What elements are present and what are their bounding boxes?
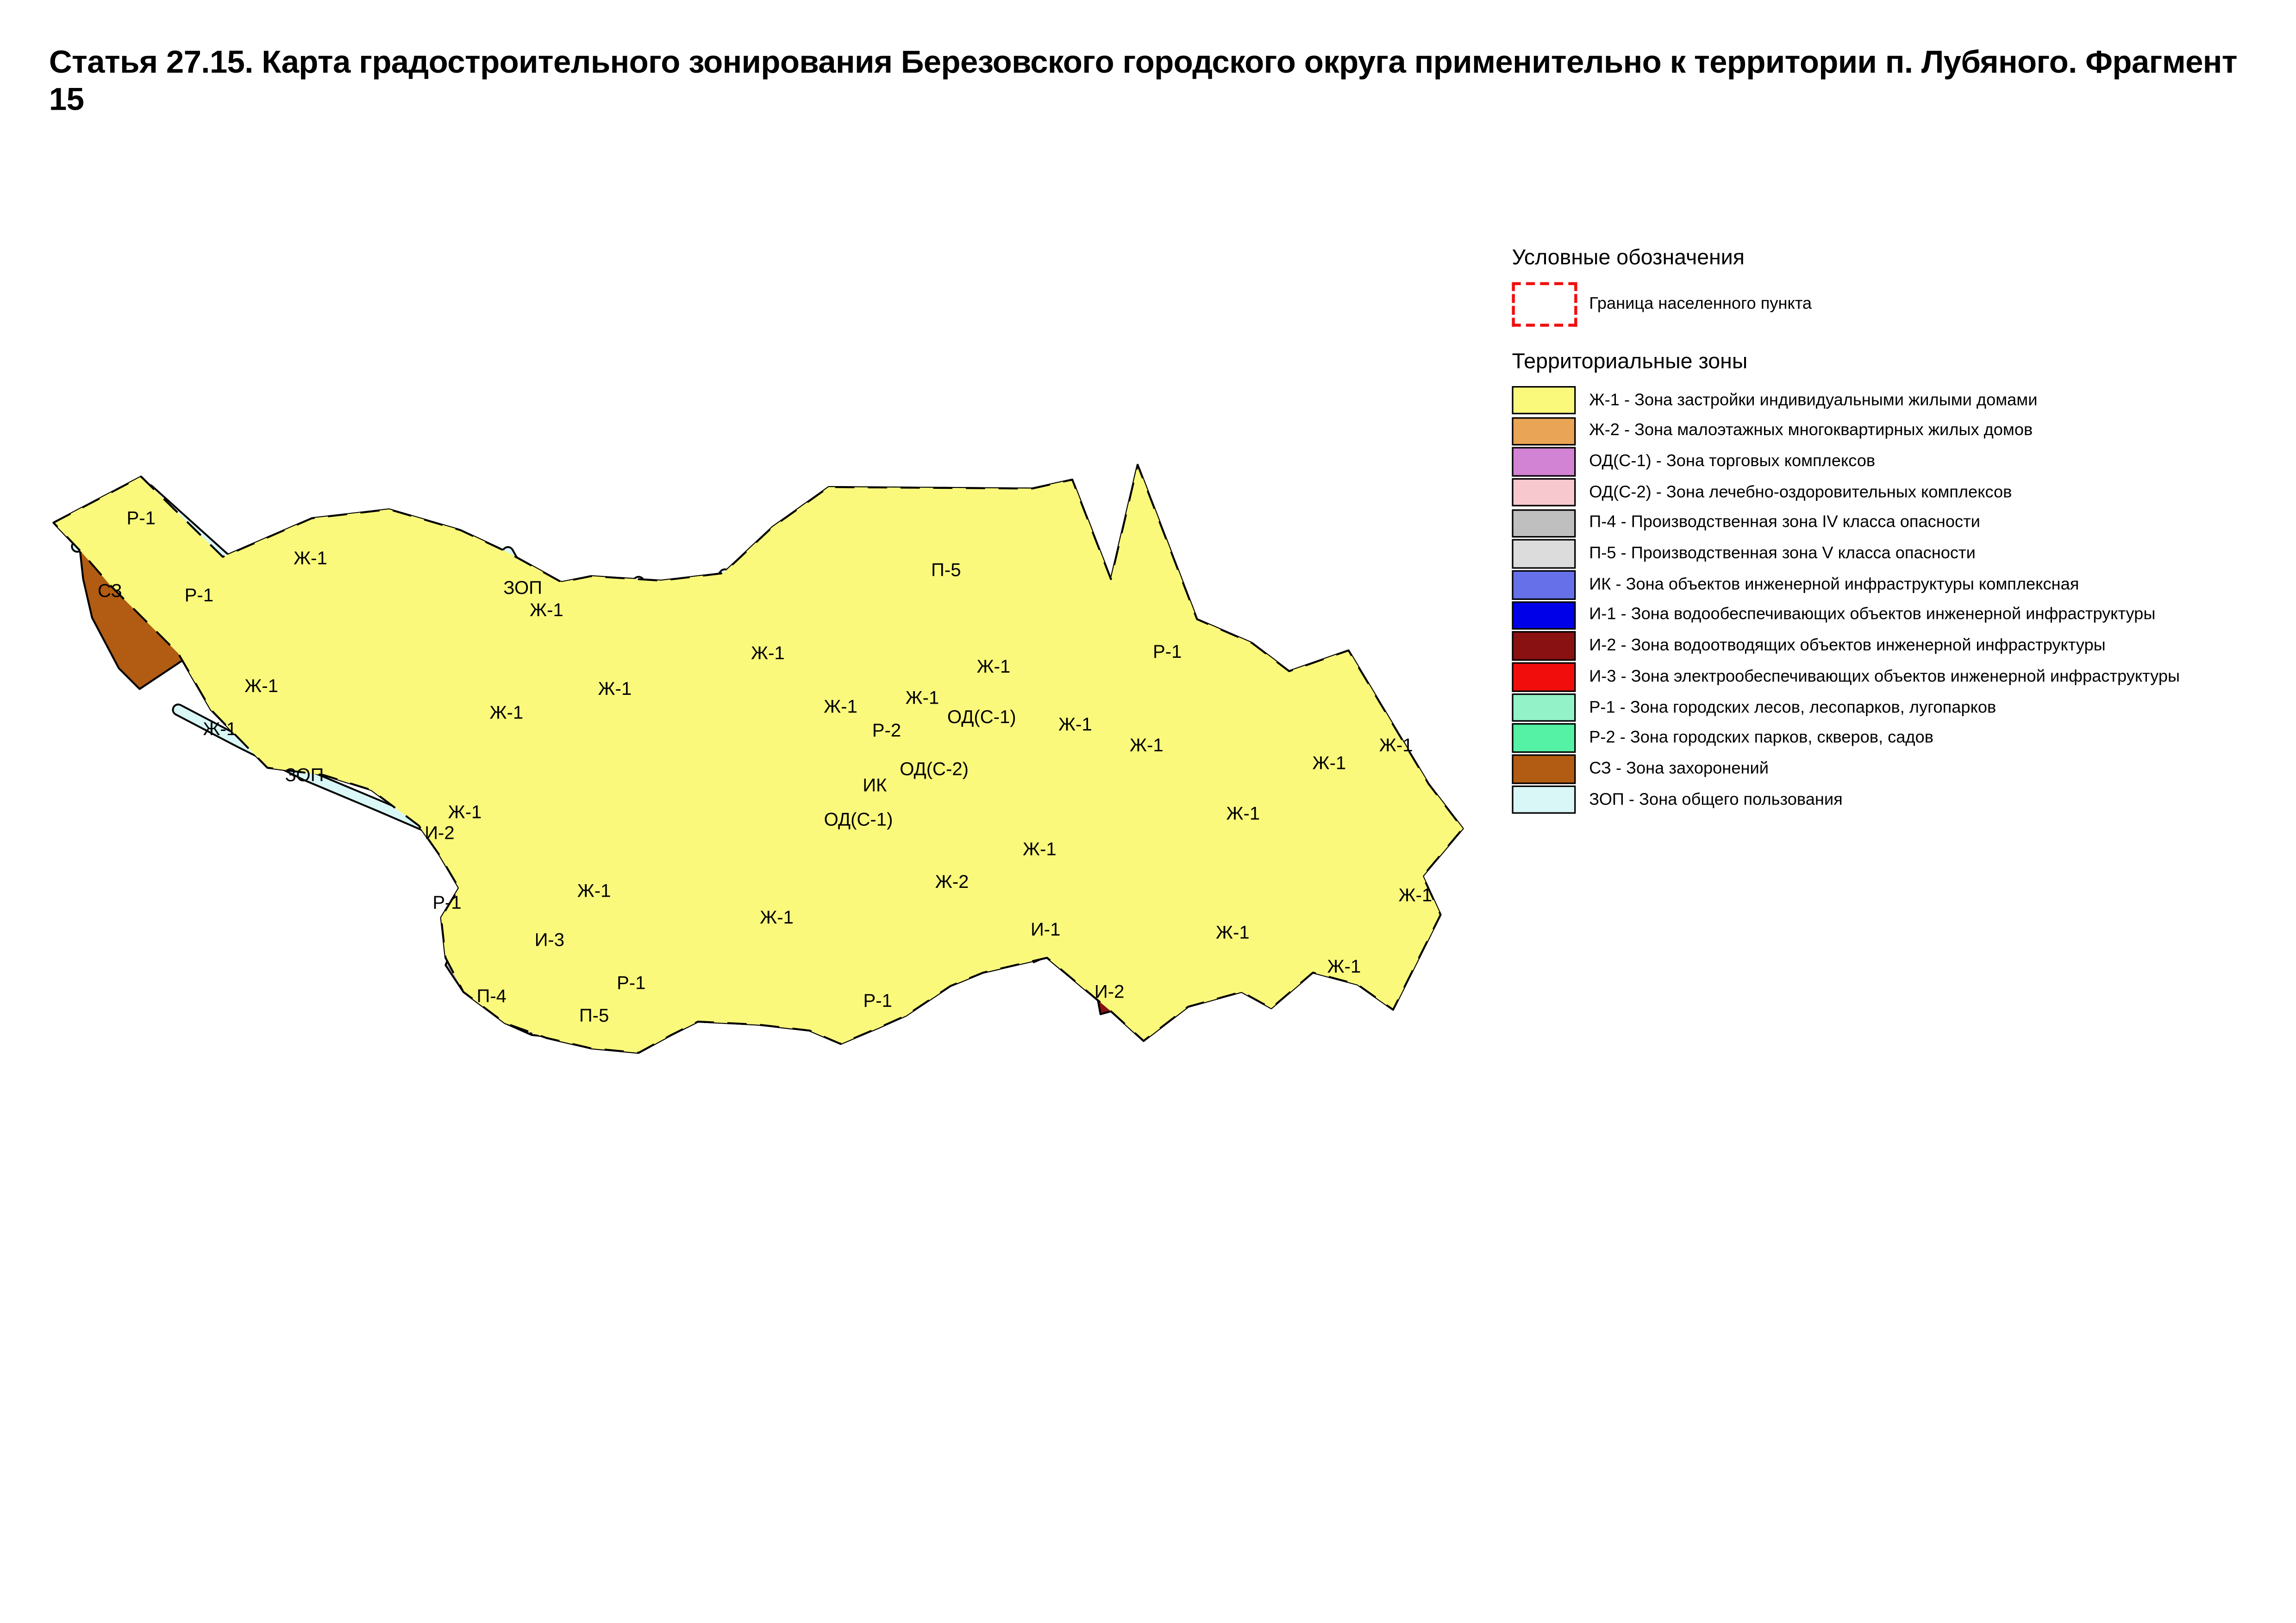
map-zone-label: Ж-1 — [1327, 956, 1361, 977]
legend-zone-swatch — [1512, 478, 1576, 507]
map-zone-label: ЗОП — [285, 765, 324, 786]
legend-zone-label: И-2 - Зона водоотводящих объектов инжене… — [1589, 637, 2105, 655]
map-zone-label: Р-1 — [863, 991, 892, 1011]
map-zone-label: П-5 — [579, 1005, 609, 1026]
legend-zone-row: Ж-1 - Зона застройки индивидуальными жил… — [1512, 386, 2210, 415]
map-zone-label: Ж-1 — [577, 880, 611, 901]
legend-zone-swatch — [1512, 755, 1576, 784]
map-zone-label: Ж-1 — [906, 687, 939, 708]
legend-zone-row: Р-1 - Зона городских лесов, лесопарков, … — [1512, 693, 2210, 722]
map-zone-label: Ж-1 — [824, 696, 857, 717]
legend-zone-label: П-4 - Производственная зона IV класса оп… — [1589, 514, 1980, 532]
map-zone-label: СЗ — [98, 581, 122, 601]
map-zone-label: ОД(С-1) — [947, 707, 1016, 728]
map-zone-label: Р-1 — [127, 508, 156, 529]
map-zone-label: Ж-1 — [1216, 922, 1250, 943]
legend-zone-swatch — [1512, 417, 1576, 446]
map-zone-label: ОД(С-1) — [824, 809, 893, 830]
map-zone-label: Ж-1 — [1379, 735, 1413, 756]
legend-zone-label: Р-2 - Зона городских парков, скверов, са… — [1589, 730, 1933, 747]
legend-zone-label: ЗОП - Зона общего пользования — [1589, 791, 1843, 808]
map-zone-label: Р-1 — [185, 585, 213, 606]
legend-zone-row: ЗОП - Зона общего пользования — [1512, 786, 2210, 814]
map-zone-label: И-2 — [425, 823, 455, 843]
map-zone-label: И-2 — [1095, 981, 1125, 1002]
map-zone-label: ЗОП — [503, 578, 542, 599]
map-zone-label: Р-1 — [432, 893, 461, 913]
map-zone-label: Р-1 — [617, 973, 645, 993]
map-zone-label: ОД(С-2) — [900, 759, 969, 780]
legend-zone-swatch — [1512, 386, 1576, 415]
legend-zone-row: П-4 - Производственная зона IV класса оп… — [1512, 509, 2210, 537]
legend-zone-row: П-5 - Производственная зона V класса опа… — [1512, 540, 2210, 568]
map-zone-label: Ж-2 — [935, 872, 969, 893]
map-zone-label: П-5 — [931, 560, 961, 581]
legend-zone-swatch — [1512, 509, 1576, 538]
settlement-boundary — [53, 465, 1463, 1053]
legend-zone-swatch — [1512, 601, 1576, 630]
legend-zone-label: Ж-1 - Зона застройки индивидуальными жил… — [1589, 392, 2037, 409]
map-zone-label: Р-2 — [872, 720, 901, 741]
map-zone-label: Ж-1 — [1313, 753, 1346, 774]
page: Статья 27.15. Карта градостроительного з… — [0, 0, 2296, 1623]
map-zone-label: И-3 — [535, 930, 565, 950]
legend-zone-list: Ж-1 - Зона застройки индивидуальными жил… — [1512, 386, 2210, 814]
legend-zone-row: СЗ - Зона захоронений — [1512, 755, 2210, 783]
map-zone-label: Ж-1 — [203, 719, 237, 740]
map-zone-label: Ж-1 — [294, 548, 327, 569]
legend-zone-swatch — [1512, 662, 1576, 692]
map-zone-label: Ж-1 — [1023, 839, 1057, 860]
map-zone-label: Ж-1 — [1399, 885, 1433, 906]
map-zone-label: Ж-1 — [244, 676, 278, 697]
map-zone-label: ИК — [863, 775, 887, 796]
legend-zone-row: Р-2 - Зона городских парков, скверов, са… — [1512, 724, 2210, 753]
legend-zone-label: СЗ - Зона захоронений — [1589, 760, 1769, 778]
map-zone-label: Ж-1 — [760, 907, 794, 928]
legend-zone-row: И-3 - Зона электрообеспечивающих объекто… — [1512, 662, 2210, 691]
map-zone-label: Ж-1 — [448, 802, 482, 823]
legend-zone-label: ИК - Зона объектов инженерной инфраструк… — [1589, 576, 2079, 593]
map-zone-label: Ж-1 — [530, 600, 563, 621]
legend-zone-swatch — [1512, 539, 1576, 568]
legend-zone-label: П-5 - Производственная зона V класса опа… — [1589, 545, 1976, 562]
legend-border-item: Граница населенного пункта — [1512, 282, 2210, 326]
legend-border-label: Граница населенного пункта — [1589, 295, 1812, 313]
map-zone-label: П-4 — [476, 986, 507, 1007]
legend-zones-title: Территориальные зоны — [1512, 350, 2210, 374]
legend-zone-label: Р-1 - Зона городских лесов, лесопарков, … — [1589, 699, 1996, 716]
legend-zone-swatch — [1512, 724, 1576, 753]
legend-zone-swatch — [1512, 785, 1576, 814]
map-zone-label: Ж-1 — [598, 679, 632, 699]
legend-zone-label: И-3 - Зона электрообеспечивающих объекто… — [1589, 668, 2180, 686]
map-zone-label: Ж-1 — [489, 702, 523, 723]
legend-zone-swatch — [1512, 632, 1576, 661]
map-zone-label: Ж-1 — [977, 656, 1011, 677]
map-zone-label: Ж-1 — [1058, 714, 1092, 735]
map-zone-label: Ж-1 — [751, 643, 785, 664]
legend-zone-swatch — [1512, 570, 1576, 599]
legend-zone-swatch — [1512, 693, 1576, 722]
legend-zone-row: ИК - Зона объектов инженерной инфраструк… — [1512, 570, 2210, 599]
legend-zone-label: ОД(С-1) - Зона торговых комплексов — [1589, 453, 1875, 470]
legend: Условные обозначения Граница населенного… — [1512, 246, 2210, 816]
zoning-map-page: Статья 27.15. Карта градостроительного з… — [0, 0, 2296, 1623]
map-zone-label: Ж-1 — [1130, 735, 1164, 756]
legend-zone-swatch — [1512, 447, 1576, 476]
legend-zone-label: И-1 - Зона водообеспечивающих объектов и… — [1589, 606, 2155, 624]
legend-zone-row: И-1 - Зона водообеспечивающих объектов и… — [1512, 601, 2210, 630]
legend-zone-row: ОД(С-1) - Зона торговых комплексов — [1512, 448, 2210, 476]
legend-symbols-title: Условные обозначения — [1512, 246, 2210, 270]
map-zone-label: И-1 — [1031, 919, 1061, 940]
legend-zone-row: ОД(С-2) - Зона лечебно-оздоровительных к… — [1512, 478, 2210, 507]
settlement-boundary-swatch — [1512, 282, 1577, 326]
legend-zone-label: ОД(С-2) - Зона лечебно-оздоровительных к… — [1589, 484, 2012, 501]
legend-zone-label: Ж-2 - Зона малоэтажных многоквартирных ж… — [1589, 422, 2033, 440]
legend-zone-row: И-2 - Зона водоотводящих объектов инжене… — [1512, 632, 2210, 661]
map-zone-label: Ж-1 — [1226, 803, 1260, 824]
map-zone-label: Р-1 — [1153, 642, 1182, 662]
legend-zone-row: Ж-2 - Зона малоэтажных многоквартирных ж… — [1512, 417, 2210, 445]
